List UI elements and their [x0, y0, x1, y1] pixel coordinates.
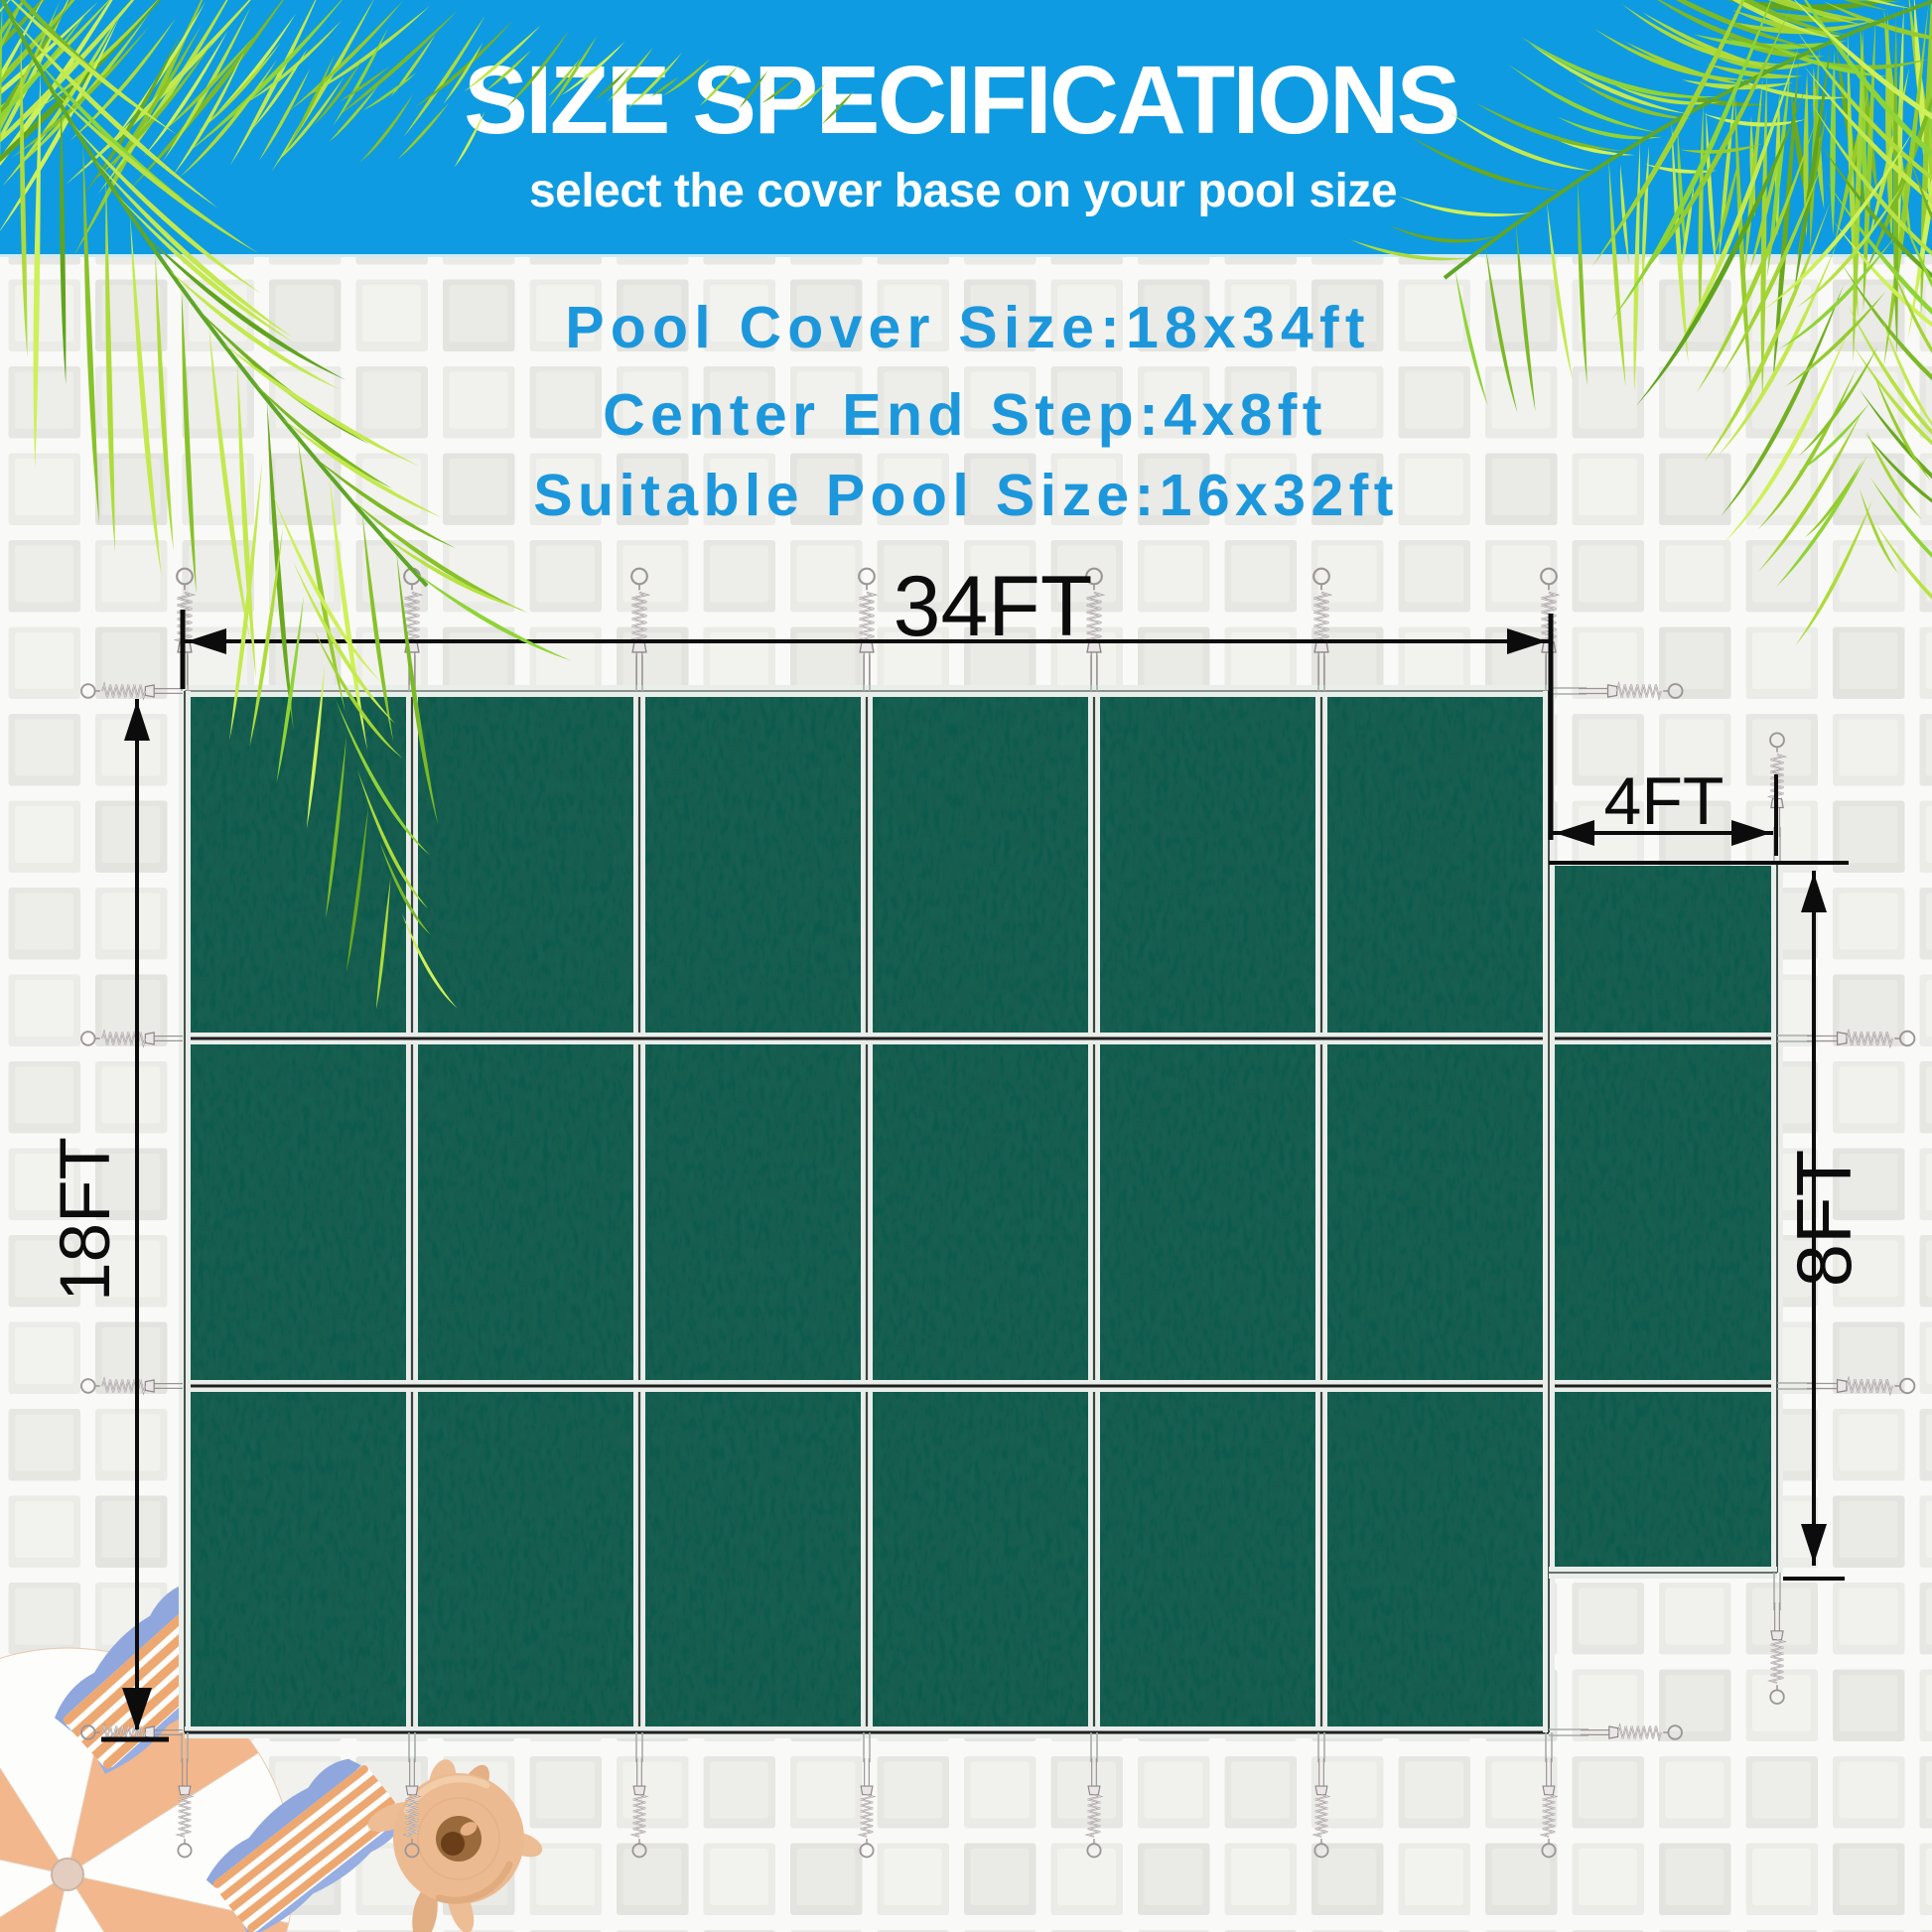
svg-text:4FT: 4FT: [1604, 763, 1725, 839]
svg-text:Pool Cover Size:18x34ft: Pool Cover Size:18x34ft: [565, 295, 1371, 360]
svg-text:18FT: 18FT: [47, 1137, 125, 1302]
svg-text:Suitable Pool Size:16x32ft: Suitable Pool Size:16x32ft: [533, 463, 1399, 528]
svg-text:8FT: 8FT: [1780, 1150, 1867, 1288]
svg-text:Center End Step:4x8ft: Center End Step:4x8ft: [603, 382, 1327, 448]
svg-text:select the cover base on your: select the cover base on your pool size: [529, 165, 1397, 217]
svg-text:34FT: 34FT: [894, 559, 1093, 654]
svg-text:SIZE SPECIFICATIONS: SIZE SPECIFICATIONS: [464, 46, 1458, 154]
